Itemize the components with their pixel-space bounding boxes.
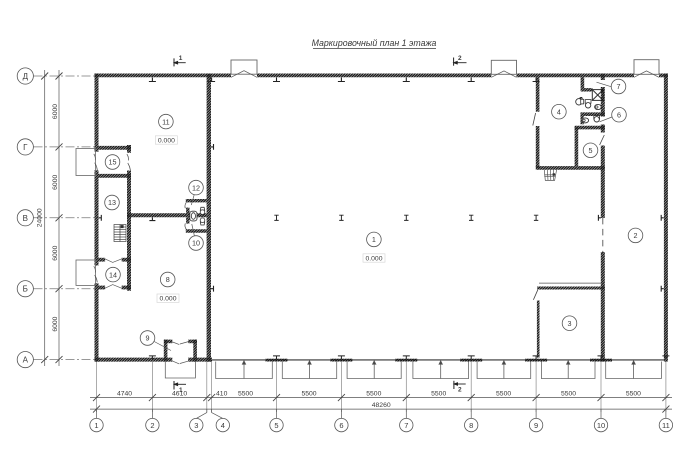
svg-text:13: 13	[108, 198, 116, 207]
svg-text:Д: Д	[23, 72, 29, 81]
svg-text:0.000: 0.000	[365, 256, 382, 263]
svg-text:7: 7	[617, 82, 621, 91]
svg-text:Б: Б	[23, 285, 28, 294]
svg-text:15: 15	[109, 158, 117, 167]
svg-text:24000: 24000	[36, 208, 43, 227]
svg-text:6000: 6000	[52, 245, 59, 260]
svg-text:3: 3	[194, 421, 198, 430]
svg-text:6000: 6000	[52, 175, 59, 190]
svg-text:11: 11	[162, 117, 169, 126]
svg-text:14: 14	[109, 270, 117, 279]
svg-text:2: 2	[634, 231, 638, 240]
svg-text:5500: 5500	[561, 390, 576, 397]
svg-text:8: 8	[469, 421, 473, 430]
svg-text:8: 8	[166, 275, 170, 284]
svg-text:2: 2	[150, 421, 154, 430]
svg-text:5500: 5500	[301, 390, 316, 397]
svg-text:4740: 4740	[117, 390, 132, 397]
svg-text:10: 10	[597, 421, 605, 430]
svg-text:2: 2	[458, 387, 462, 394]
svg-text:Г: Г	[23, 143, 28, 152]
svg-text:6: 6	[617, 110, 621, 119]
svg-text:А: А	[23, 356, 29, 365]
svg-text:5: 5	[589, 146, 593, 155]
svg-text:1: 1	[372, 235, 376, 244]
svg-text:5500: 5500	[496, 390, 511, 397]
svg-text:48260: 48260	[372, 402, 391, 409]
svg-text:11: 11	[662, 421, 670, 430]
svg-text:3: 3	[568, 319, 572, 328]
svg-text:5: 5	[274, 421, 278, 430]
svg-text:5500: 5500	[366, 390, 381, 397]
svg-text:6: 6	[339, 421, 343, 430]
svg-text:9: 9	[534, 421, 538, 430]
svg-text:0.000: 0.000	[159, 296, 176, 303]
svg-text:12: 12	[192, 183, 200, 192]
svg-text:2: 2	[458, 55, 462, 62]
svg-text:6000: 6000	[52, 316, 59, 331]
svg-text:9: 9	[146, 334, 150, 343]
svg-text:1: 1	[179, 387, 183, 394]
svg-text:5500: 5500	[431, 390, 446, 397]
svg-text:Маркировочный план 1 этажа: Маркировочный план 1 этажа	[312, 38, 437, 48]
svg-text:4: 4	[557, 107, 561, 116]
svg-text:5500: 5500	[626, 390, 641, 397]
svg-text:7: 7	[404, 421, 408, 430]
svg-text:410: 410	[216, 390, 228, 397]
svg-text:10: 10	[192, 239, 200, 248]
svg-text:4: 4	[221, 421, 225, 430]
svg-text:1: 1	[94, 421, 98, 430]
svg-text:1: 1	[179, 55, 183, 62]
svg-text:0.000: 0.000	[158, 138, 175, 145]
svg-text:5500: 5500	[238, 390, 253, 397]
svg-text:6000: 6000	[52, 104, 59, 119]
svg-text:В: В	[23, 214, 28, 223]
